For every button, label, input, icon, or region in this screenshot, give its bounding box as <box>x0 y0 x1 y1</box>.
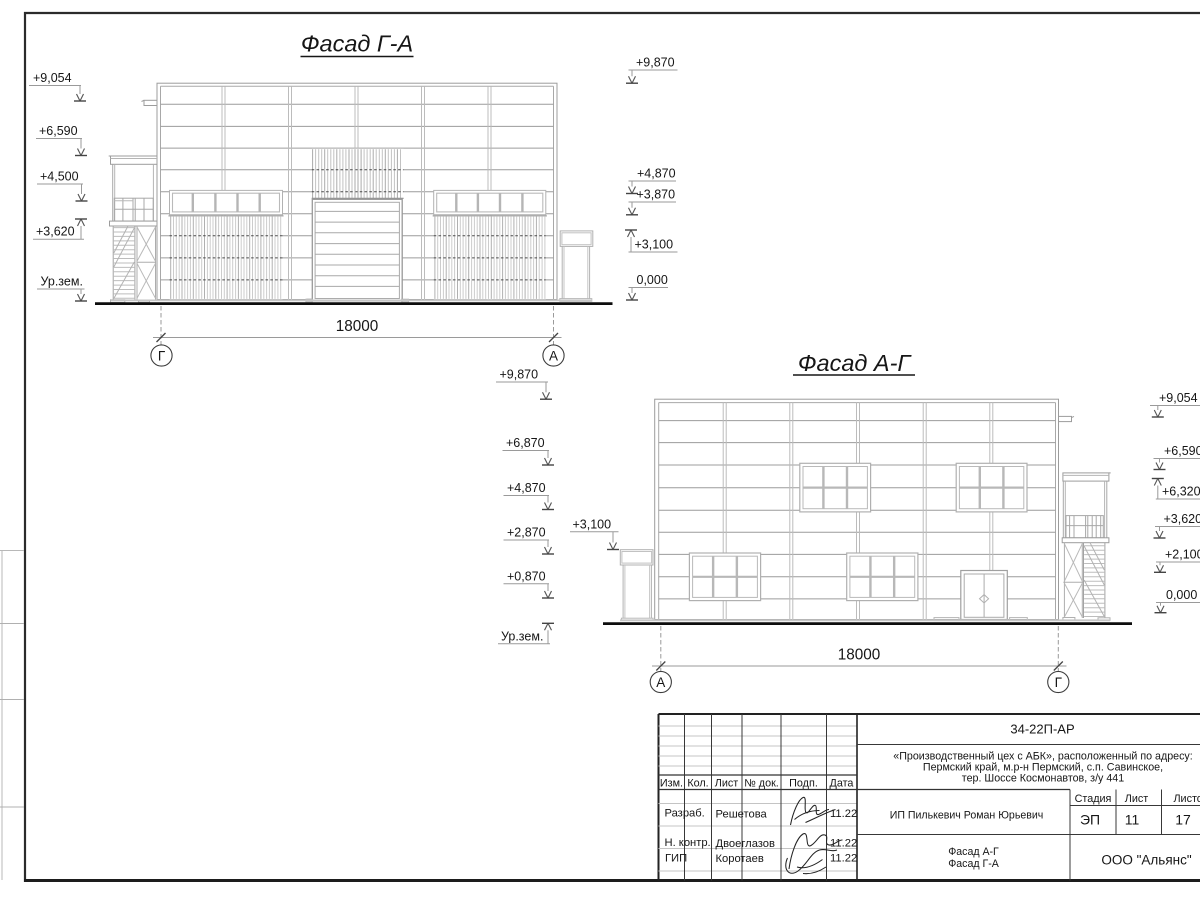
svg-text:А: А <box>656 675 665 690</box>
svg-text:Дата: Дата <box>830 778 854 790</box>
svg-text:+2,870: +2,870 <box>507 526 546 540</box>
svg-text:Кол.: Кол. <box>687 778 708 790</box>
svg-text:Решетова: Решетова <box>716 809 768 821</box>
svg-text:ЭП: ЭП <box>1080 812 1100 828</box>
svg-text:+2,100: +2,100 <box>1165 548 1200 562</box>
svg-text:+6,870: +6,870 <box>506 436 545 450</box>
svg-text:Листов: Листов <box>1173 793 1200 805</box>
svg-text:18000: 18000 <box>336 318 379 335</box>
svg-text:Двоеглазов: Двоеглазов <box>716 838 776 850</box>
svg-text:Коротаев: Коротаев <box>716 853 764 865</box>
svg-text:+6,320: +6,320 <box>1162 485 1200 499</box>
svg-text:Фасад А-Г: Фасад А-Г <box>948 846 999 858</box>
svg-text:17: 17 <box>1175 812 1191 828</box>
svg-text:+0,870: +0,870 <box>507 569 546 583</box>
svg-text:тер. Шоссе Космонавтов, з/у 44: тер. Шоссе Космонавтов, з/у 441 <box>962 773 1124 785</box>
svg-text:ИП Пилькевич Роман Юрьевич: ИП Пилькевич Роман Юрьевич <box>890 810 1044 822</box>
svg-text:+9,870: +9,870 <box>500 368 539 382</box>
svg-text:+3,100: +3,100 <box>573 517 612 531</box>
svg-text:Лист: Лист <box>715 778 739 790</box>
svg-text:Лист: Лист <box>1125 793 1149 805</box>
svg-text:А: А <box>549 348 558 363</box>
svg-text:Н. контр.: Н. контр. <box>665 837 711 849</box>
svg-text:11: 11 <box>1125 812 1140 828</box>
svg-text:+9,870: +9,870 <box>636 56 675 70</box>
svg-text:Фасад А-Г: Фасад А-Г <box>798 350 913 376</box>
svg-text:Разраб.: Разраб. <box>665 808 705 820</box>
svg-text:Ур.зем.: Ур.зем. <box>501 629 543 643</box>
svg-text:Ур.зем.: Ур.зем. <box>41 275 83 289</box>
svg-text:+4,500: +4,500 <box>40 170 79 184</box>
svg-text:Изм.: Изм. <box>660 778 683 790</box>
svg-text:+3,620: +3,620 <box>36 225 75 239</box>
svg-text:+3,870: +3,870 <box>637 188 676 202</box>
svg-text:Фасад Г-А: Фасад Г-А <box>948 858 1000 870</box>
svg-text:№ док.: № док. <box>744 778 779 790</box>
svg-text:ООО "Альянс": ООО "Альянс" <box>1101 853 1191 868</box>
svg-text:Г: Г <box>158 348 166 363</box>
svg-text:+4,870: +4,870 <box>637 167 676 181</box>
svg-text:Фасад Г-А: Фасад Г-А <box>301 31 413 57</box>
svg-text:ГИП: ГИП <box>665 853 687 865</box>
svg-text:0,000: 0,000 <box>1166 588 1197 602</box>
svg-text:+3,100: +3,100 <box>635 238 674 252</box>
svg-text:11.22: 11.22 <box>830 853 857 865</box>
svg-text:+9,054: +9,054 <box>33 71 72 85</box>
svg-text:+6,590: +6,590 <box>1164 444 1200 458</box>
svg-text:+9,054: +9,054 <box>1159 391 1198 405</box>
svg-text:+4,870: +4,870 <box>507 481 546 495</box>
svg-text:Стадия: Стадия <box>1075 793 1112 805</box>
svg-text:0,000: 0,000 <box>637 273 668 287</box>
svg-text:+6,590: +6,590 <box>39 124 78 138</box>
svg-text:18000: 18000 <box>838 647 881 664</box>
svg-text:Г: Г <box>1055 675 1063 690</box>
svg-text:Подп.: Подп. <box>789 778 818 790</box>
svg-text:+3,620: +3,620 <box>1164 512 1200 526</box>
svg-text:34-22П-АР: 34-22П-АР <box>1010 722 1074 737</box>
